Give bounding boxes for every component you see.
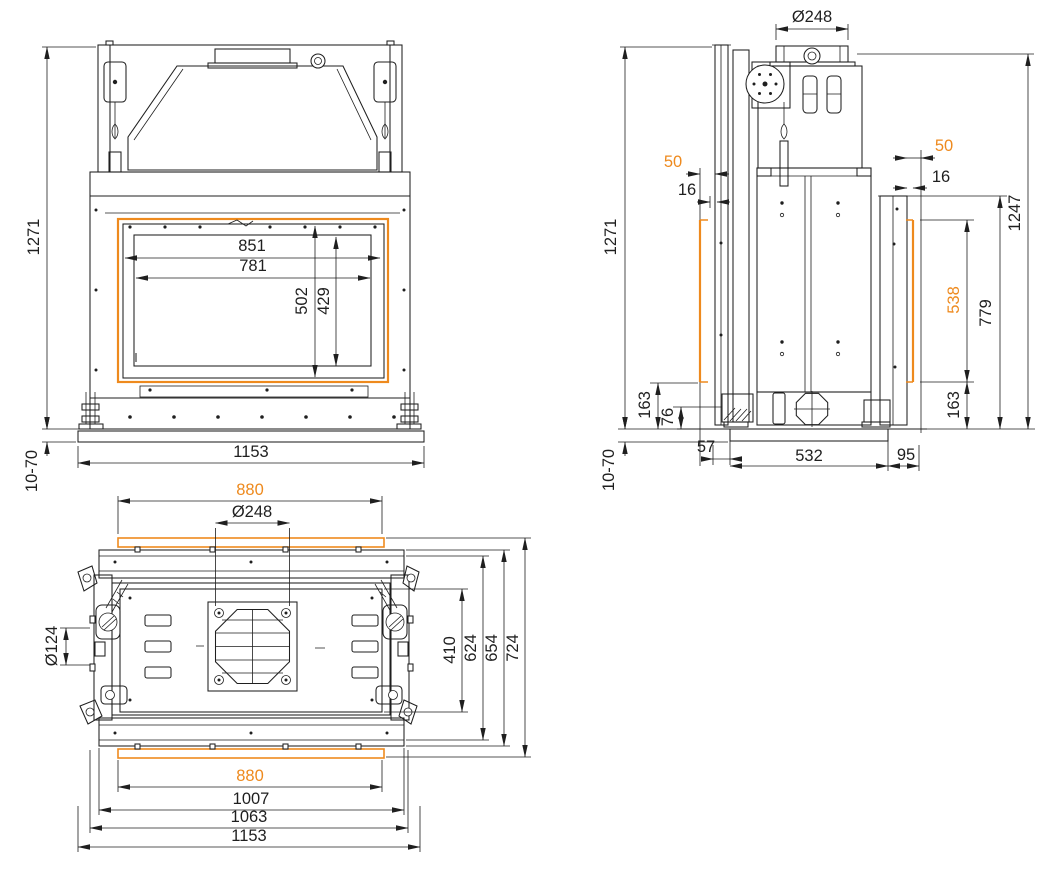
base-screws [128, 415, 396, 419]
dim-front-glass-width: 781 [239, 257, 267, 275]
top-view: 880 Ø248 Ø124 410 624 654 724 880 1007 [43, 481, 531, 852]
body-top [112, 583, 390, 715]
dim-front-glass-height: 429 [315, 287, 333, 315]
dim-top-trim-width-front: 880 [236, 481, 264, 499]
dim-front-overall-height: 1271 [25, 219, 43, 256]
trim-frame-top [118, 538, 384, 547]
dim-front-frame-height: 502 [293, 287, 311, 315]
dim-side-front-clearance: 163 [636, 391, 654, 419]
dim-side-rear-clearance: 163 [945, 391, 963, 419]
turnbuckle [780, 141, 788, 186]
front-dimensions: 1271 10-70 1153 851 781 502 429 [23, 47, 424, 492]
body-column [757, 168, 871, 392]
dim-front-floor-adjustment: 10-70 [23, 450, 41, 492]
top-structure [78, 528, 419, 758]
pulley-side [746, 65, 784, 103]
dim-side-trim-height: 538 [945, 286, 963, 314]
dim-side-base-depth: 532 [795, 447, 823, 465]
hood-outline [128, 66, 377, 170]
flue-front [215, 49, 290, 63]
rear-rail [880, 196, 907, 425]
trim-frame-bottom [118, 749, 384, 758]
front-body [78, 172, 424, 442]
dim-top-flue-diameter: Ø248 [232, 503, 272, 521]
fireplace-dimension-drawing: 1271 10-70 1153 851 781 502 429 [0, 0, 1054, 874]
front-upper-frame [98, 41, 402, 172]
dim-side-rear-depth: 95 [897, 446, 915, 464]
floor-plate-side [730, 429, 888, 441]
cable-hook [781, 124, 787, 139]
floor-plate-front [78, 431, 424, 442]
lifting-eye-side [804, 48, 820, 64]
lifting-eye-front [311, 54, 325, 68]
dim-top-flange-depth: 654 [483, 634, 501, 662]
dim-top-overall-depth: 724 [504, 634, 522, 662]
panel-screws [720, 201, 840, 355]
dim-front-frame-width: 851 [238, 237, 266, 255]
side-foot-right [862, 400, 890, 427]
dim-top-body-width: 1063 [231, 808, 268, 826]
dim-side-foot-clearance: 76 [659, 408, 677, 426]
dim-side-rear-height: 1247 [1006, 195, 1024, 232]
top-dimensions: 880 Ø248 Ø124 410 624 654 724 880 1007 [43, 481, 531, 852]
side-structure [677, 45, 927, 466]
dim-side-rear-offset-50: 50 [935, 137, 953, 155]
dim-side-floor-adjustment: 10-70 [600, 449, 618, 491]
dim-top-body-depth: 624 [462, 634, 480, 662]
dim-top-trim-width-rear: 880 [236, 767, 264, 785]
technical-drawing-page: 1271 10-70 1153 851 781 502 429 [0, 0, 1054, 874]
dim-side-rear-offset-16: 16 [932, 168, 950, 186]
dim-top-inner-depth: 410 [441, 636, 459, 664]
dim-side-front-offset-16: 16 [678, 181, 696, 199]
dim-side-front-depth: 57 [697, 438, 715, 456]
dim-side-flue-diameter: Ø248 [792, 8, 832, 26]
front-view: 1271 10-70 1153 851 781 502 429 [23, 41, 424, 492]
dim-side-front-offset-50: 50 [664, 153, 682, 171]
dim-top-side-outlet-diameter: Ø124 [43, 626, 61, 666]
pulley-bracket-left [104, 62, 126, 172]
door-latch [228, 220, 253, 226]
dim-top-overall-width: 1153 [231, 827, 266, 845]
door-screws [95, 209, 406, 392]
dim-side-overall-height: 1271 [602, 219, 620, 256]
side-view: Ø248 50 16 1271 10-70 163 76 57 [600, 8, 1035, 491]
side-foot-left [722, 394, 753, 427]
dim-top-frame-width: 1007 [233, 790, 270, 808]
dim-front-overall-width: 1153 [233, 443, 268, 461]
dim-side-rear-panel-height: 779 [977, 299, 995, 327]
